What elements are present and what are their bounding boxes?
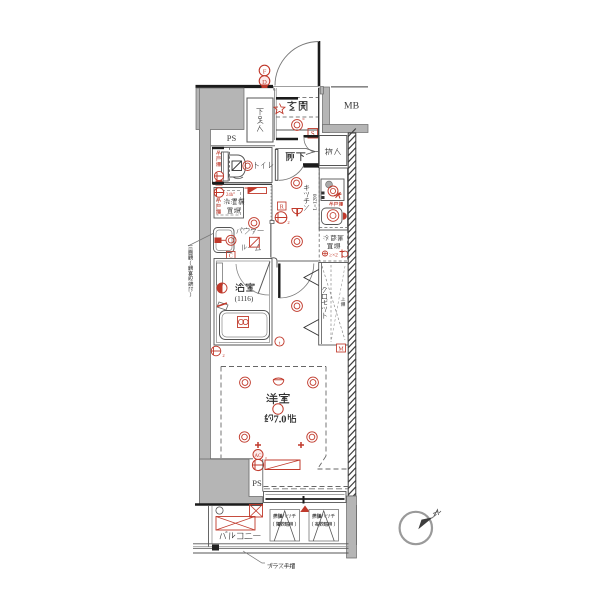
svg-text:M: M	[338, 347, 344, 353]
svg-text:≥×2: ≥×2	[329, 253, 338, 259]
svg-text:F: F	[263, 69, 267, 76]
svg-text:7.0: 7.0	[274, 415, 287, 426]
svg-text:PS: PS	[252, 478, 262, 488]
svg-text:MB: MB	[344, 101, 360, 112]
svg-text:AC: AC	[255, 454, 263, 459]
svg-text:PS: PS	[227, 133, 237, 143]
svg-text:R: R	[280, 205, 284, 211]
svg-text:24h°: 24h°	[226, 193, 235, 198]
svg-text:L=1200: L=1200	[313, 193, 319, 210]
svg-text:(1116): (1116)	[235, 295, 254, 303]
